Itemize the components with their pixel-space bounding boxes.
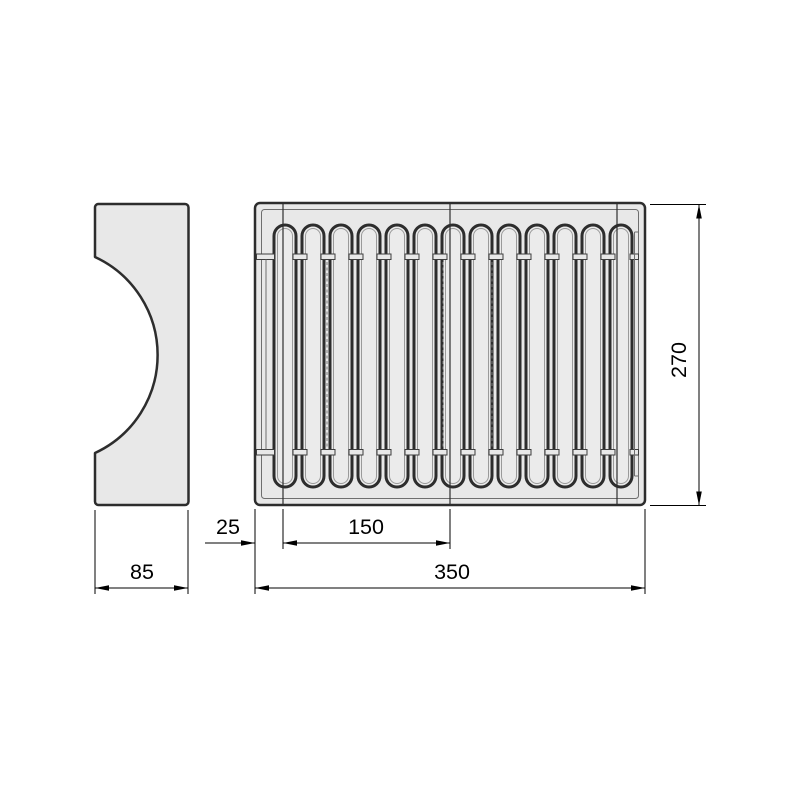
- tab-bottom-8: [489, 450, 503, 456]
- dimension-150: 150: [283, 515, 450, 546]
- tab-top-6: [433, 254, 447, 260]
- tab-top-11: [573, 254, 587, 260]
- side-profile-outline: [95, 204, 189, 505]
- dimension-350-label: 350: [434, 560, 470, 584]
- dimension-150-label: 150: [348, 515, 384, 539]
- tab-top-3: [349, 254, 363, 260]
- tab-top-8: [489, 254, 503, 260]
- tab-top-7: [461, 254, 475, 260]
- dimension-270-label: 270: [667, 342, 691, 378]
- dimension-350: 350: [255, 560, 645, 591]
- tab-bottom-3: [349, 450, 363, 456]
- plate-organizer-drawing: 25 150 350 85 270: [0, 0, 800, 800]
- tab-bottom-1: [293, 450, 307, 456]
- tab-bottom-6: [433, 450, 447, 456]
- dimension-25-label: 25: [216, 515, 240, 539]
- dimension-85-label: 85: [130, 560, 154, 584]
- tab-top-2: [321, 254, 335, 260]
- tab-bottom-12: [601, 450, 615, 456]
- tab-bottom-9: [517, 450, 531, 456]
- tab-top-10: [545, 254, 559, 260]
- tab-bottom-5: [405, 450, 419, 456]
- dimension-270: 270: [667, 205, 702, 506]
- technical-drawing-canvas: 25 150 350 85 270: [0, 0, 800, 800]
- tab-bottom-4: [377, 450, 391, 456]
- tab-bottom-10: [545, 450, 559, 456]
- tab-top-4: [377, 254, 391, 260]
- tab-bottom-11: [573, 450, 587, 456]
- tab-top-1: [293, 254, 307, 260]
- tab-top-9: [517, 254, 531, 260]
- dimension-85: 85: [95, 560, 188, 591]
- left-edge-tab-top: [257, 254, 275, 260]
- tab-bottom-7: [461, 450, 475, 456]
- side-profile-view: [95, 204, 189, 505]
- top-view: [255, 203, 645, 505]
- left-edge-tab-bottom: [257, 450, 275, 456]
- tab-bottom-2: [321, 450, 335, 456]
- tab-top-12: [601, 254, 615, 260]
- tab-top-5: [405, 254, 419, 260]
